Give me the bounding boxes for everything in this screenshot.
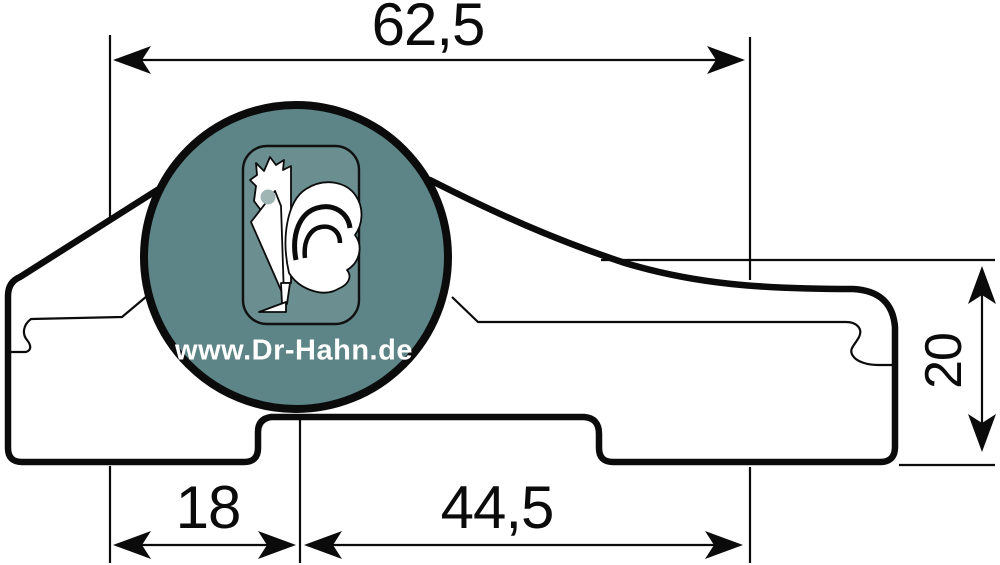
- dimension-value-bottom-left: 18: [176, 478, 241, 538]
- profile-outer-contour: [8, 175, 895, 462]
- logo-url-text: www.Dr-Hahn.de: [175, 335, 413, 368]
- dimension-value-right-height: 20: [918, 333, 970, 389]
- technical-drawing-canvas: 62,5 20 18 44,5 www.Dr-Hahn.de: [0, 0, 1000, 565]
- dimension-value-bottom-center: 44,5: [441, 478, 554, 538]
- dimension-value-top-width: 62,5: [372, 0, 485, 55]
- profile-outline: [8, 175, 895, 462]
- rooster-eye: [261, 190, 276, 205]
